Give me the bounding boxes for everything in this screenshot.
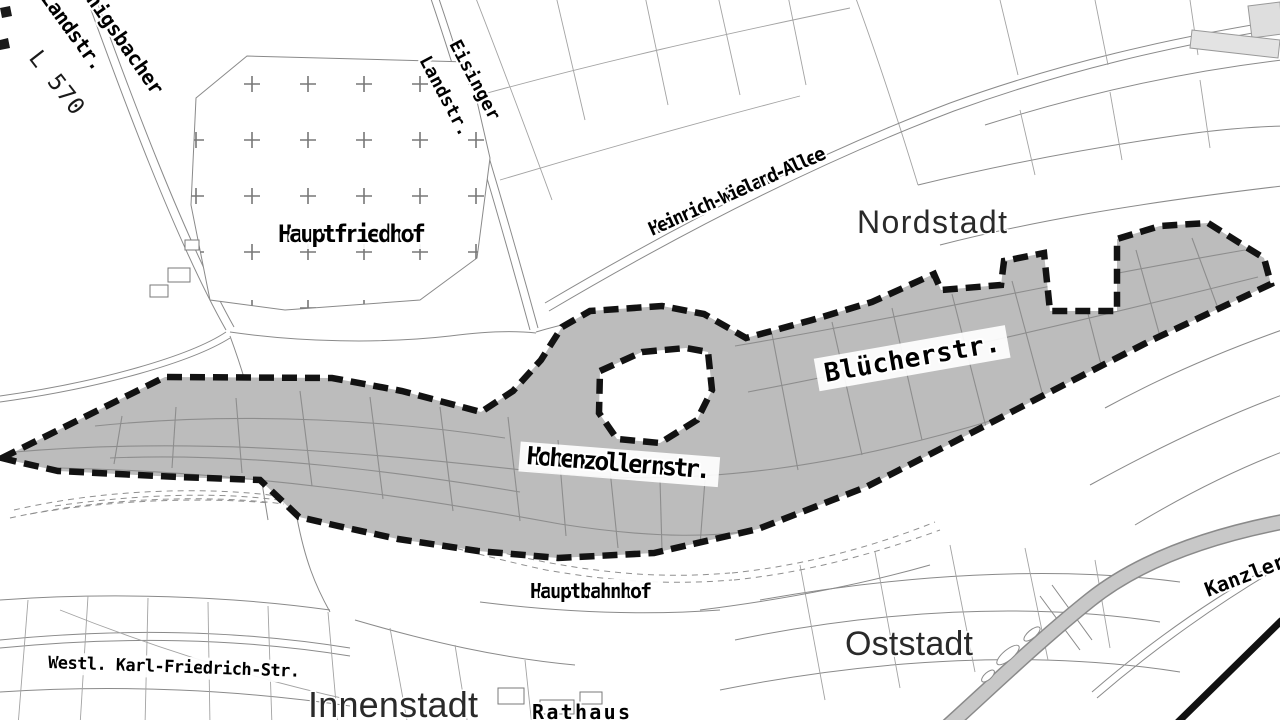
station-label-group: Hauptbahnhof [524, 579, 658, 605]
map-mark [0, 38, 10, 50]
district-label-oststadt: Oststadt [845, 625, 974, 663]
map-mark [0, 6, 12, 18]
street-label-heinrich-wieland-allee: Heinrich-Wieland-Allee [645, 142, 829, 240]
cemetery-label-group: Hauptfriedhof [272, 220, 432, 249]
river [948, 522, 1280, 720]
city-map: L 570 Königsbacher Landstr. Eisinger Lan… [0, 0, 1280, 720]
highlighted-area [2, 223, 1271, 558]
poi-label-rathaus: Rathaus [532, 700, 630, 720]
district-label-nordstadt: Nordstadt [857, 204, 1007, 240]
hatched-area [1248, 2, 1280, 38]
railway-thick-line [1174, 620, 1280, 720]
building [150, 285, 168, 297]
building [168, 268, 190, 282]
area-label-hauptfriedhof: Hauptfriedhof [278, 220, 426, 248]
building [498, 688, 524, 704]
building [185, 240, 199, 250]
station-label-hauptbahnhof: Hauptbahnhof [530, 579, 652, 603]
map-canvas: L 570 Königsbacher Landstr. Eisinger Lan… [0, 0, 1280, 720]
district-label-innenstadt: Innenstadt [308, 684, 478, 720]
